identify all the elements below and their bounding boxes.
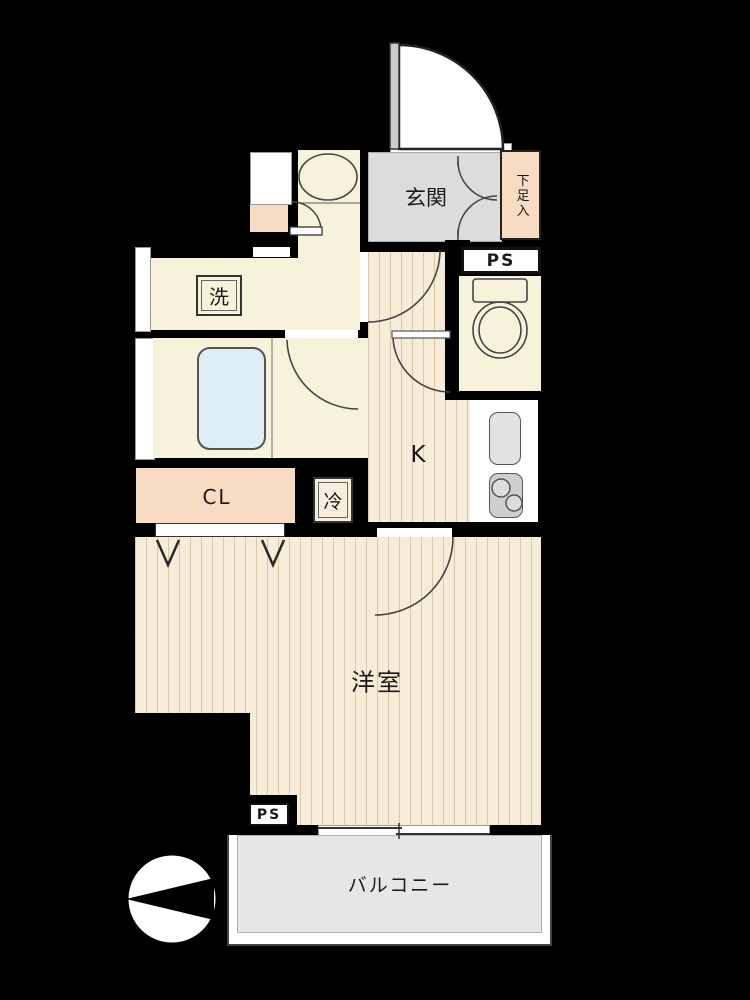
washroom-door-opening [360,252,368,322]
washroom-door-arc [368,250,440,322]
bathroom-door-arc [287,340,358,409]
western-room-door-arc [375,537,453,615]
shoe-cabinet-label: 下足入 [512,174,531,219]
washbasin-icon [299,154,357,200]
stove-burners [492,479,522,511]
entrance-door-leaf [390,43,399,149]
genkan-label: 玄関 [405,182,447,212]
kitchen-label: K [410,442,425,468]
bathroom-door-opening [285,330,358,338]
sliding-window-lines [318,823,490,839]
shoe-cabinet-doors-icon [458,156,497,240]
washroom-small-door [290,202,322,235]
toilet-icon [473,279,527,358]
entrance-door-arc-icon [399,45,503,149]
closet-label: CL [202,485,231,509]
floor-plan: PS 冷 洗 PS [0,0,750,1000]
hall-kitchen-door [392,331,450,392]
compass-icon [126,854,217,944]
folding-door-v-marks [157,540,284,565]
western-room-label: 洋室 [351,663,403,698]
symbol-overlay [0,0,750,1000]
balcony-label: バルコニー [348,871,453,898]
